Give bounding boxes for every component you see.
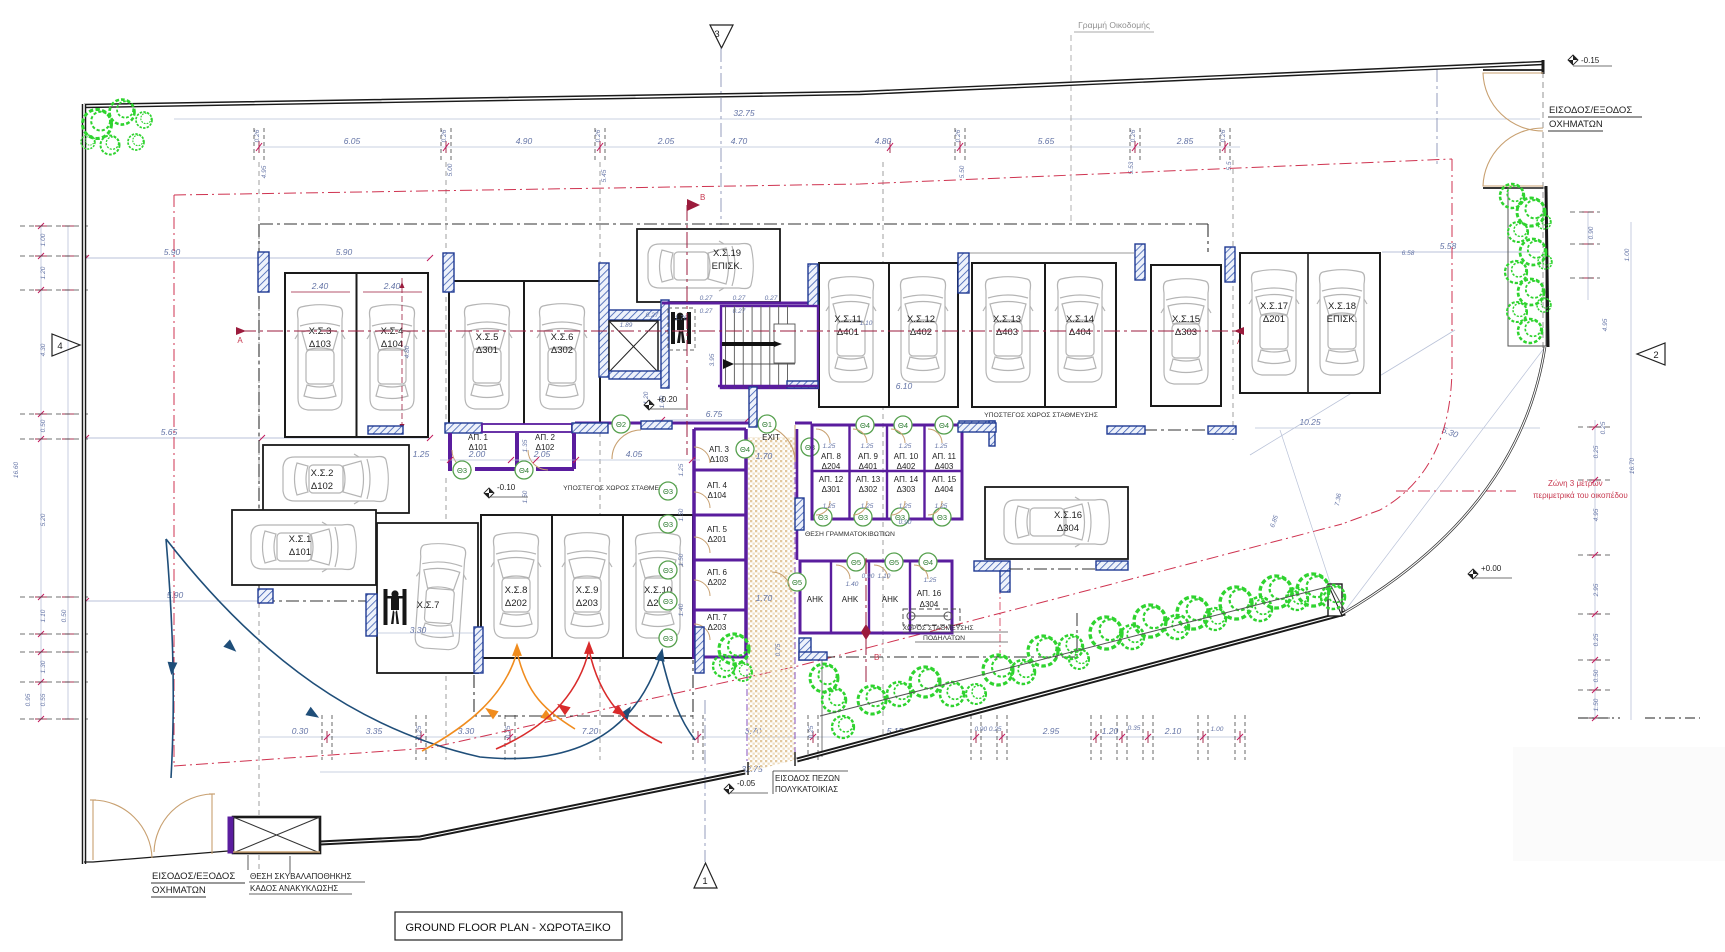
svg-text:0.50: 0.50 bbox=[1593, 669, 1600, 682]
svg-text:1.70: 1.70 bbox=[756, 593, 773, 603]
svg-text:4.95: 4.95 bbox=[1593, 508, 1600, 521]
svg-text:4: 4 bbox=[57, 341, 62, 352]
svg-text:Χ.Σ.1: Χ.Σ.1 bbox=[289, 534, 312, 545]
svg-text:0.25: 0.25 bbox=[1593, 445, 1600, 458]
svg-text:1.25: 1.25 bbox=[935, 443, 948, 450]
svg-text:Θ4: Θ4 bbox=[898, 421, 908, 430]
svg-text:ΚΑΔΟΣ ΑΝΑΚΥΚΛΩΣΗΣ: ΚΑΔΟΣ ΑΝΑΚΥΚΛΩΣΗΣ bbox=[250, 884, 338, 893]
svg-text:1.10: 1.10 bbox=[40, 609, 47, 622]
svg-text:0.75: 0.75 bbox=[775, 643, 782, 656]
svg-text:Ζώνη 3 μέτρων: Ζώνη 3 μέτρων bbox=[1548, 479, 1603, 488]
svg-text:Χ.Σ.2: Χ.Σ.2 bbox=[311, 468, 334, 479]
svg-text:Χ.Σ.6: Χ.Σ.6 bbox=[551, 332, 574, 343]
svg-text:Δ303: Δ303 bbox=[897, 485, 916, 494]
svg-text:1.76: 1.76 bbox=[675, 315, 688, 322]
svg-text:5.00: 5.00 bbox=[447, 163, 454, 176]
svg-text:ΕΙΣΟΔΟΣ/ΕΞΟΔΟΣ: ΕΙΣΟΔΟΣ/ΕΞΟΔΟΣ bbox=[152, 871, 235, 882]
svg-text:Θ3: Θ3 bbox=[858, 513, 868, 522]
svg-text:Θ5: Θ5 bbox=[851, 558, 861, 567]
svg-text:ΑΠ. 16: ΑΠ. 16 bbox=[917, 589, 942, 598]
svg-text:ΠΟΔΗΛΑΤΩΝ: ΠΟΔΗΛΑΤΩΝ bbox=[923, 635, 965, 642]
svg-text:3: 3 bbox=[714, 29, 719, 40]
svg-text:ΑΠ. 3: ΑΠ. 3 bbox=[709, 445, 730, 454]
svg-text:Χ.Σ.5: Χ.Σ.5 bbox=[476, 332, 499, 343]
svg-text:-0.15: -0.15 bbox=[1581, 56, 1600, 65]
svg-text:3.95: 3.95 bbox=[709, 353, 716, 366]
svg-text:0.90: 0.90 bbox=[862, 573, 875, 580]
svg-text:0.95: 0.95 bbox=[25, 693, 32, 706]
svg-text:6.58: 6.58 bbox=[1402, 250, 1415, 257]
svg-text:0.27: 0.27 bbox=[765, 295, 778, 302]
svg-text:Δ102: Δ102 bbox=[311, 481, 333, 492]
svg-text:1.25: 1.25 bbox=[861, 443, 874, 450]
svg-text:EXIT: EXIT bbox=[762, 433, 780, 442]
svg-text:ΑΠ. 11: ΑΠ. 11 bbox=[932, 452, 956, 461]
svg-text:ΑΠ. 15: ΑΠ. 15 bbox=[932, 475, 957, 484]
svg-text:1.00: 1.00 bbox=[1624, 248, 1631, 261]
svg-text:1.25: 1.25 bbox=[413, 449, 430, 459]
svg-text:5.58: 5.58 bbox=[1440, 241, 1457, 251]
svg-text:Χ.Σ.13: Χ.Σ.13 bbox=[993, 314, 1021, 325]
svg-text:Δ401: Δ401 bbox=[837, 327, 859, 338]
svg-text:0.27: 0.27 bbox=[700, 308, 713, 315]
svg-text:Δ201: Δ201 bbox=[1263, 314, 1285, 325]
svg-text:0.26: 0.26 bbox=[254, 129, 261, 142]
svg-text:Χ.Σ.11: Χ.Σ.11 bbox=[834, 314, 861, 325]
svg-text:Χ.Σ.19: Χ.Σ.19 bbox=[713, 248, 741, 259]
svg-text:0.25: 0.25 bbox=[505, 725, 512, 738]
svg-text:2.40: 2.40 bbox=[383, 281, 401, 291]
svg-text:0.26: 0.26 bbox=[1130, 129, 1137, 142]
svg-text:+0.20: +0.20 bbox=[657, 395, 678, 404]
svg-text:ΑΠ. 13: ΑΠ. 13 bbox=[856, 475, 881, 484]
svg-text:Θ4: Θ4 bbox=[939, 421, 949, 430]
svg-text:4.95: 4.95 bbox=[261, 165, 268, 178]
svg-text:16.60: 16.60 bbox=[13, 461, 20, 478]
svg-text:Θ3: Θ3 bbox=[663, 634, 673, 643]
svg-text:Χ.Σ.9: Χ.Σ.9 bbox=[576, 585, 599, 596]
svg-text:ΘΕΣΗ ΣΚΥΒΑΛΑΠΟΘΗΚΗΣ: ΘΕΣΗ ΣΚΥΒΑΛΑΠΟΘΗΚΗΣ bbox=[250, 872, 352, 881]
svg-text:5.90: 5.90 bbox=[164, 247, 181, 257]
svg-text:Χ.Σ.7: Χ.Σ.7 bbox=[417, 600, 440, 611]
svg-text:Δ104: Δ104 bbox=[708, 491, 727, 500]
svg-text:5.20: 5.20 bbox=[40, 513, 47, 526]
svg-text:2.40: 2.40 bbox=[311, 281, 329, 291]
svg-text:2.10: 2.10 bbox=[1164, 726, 1182, 736]
svg-text:ΟΧΗΜΑΤΩΝ: ΟΧΗΜΑΤΩΝ bbox=[152, 885, 206, 896]
svg-text:ΑΠ. 9: ΑΠ. 9 bbox=[858, 452, 879, 461]
svg-text:Δ302: Δ302 bbox=[859, 485, 878, 494]
svg-text:Δ404: Δ404 bbox=[935, 485, 954, 494]
svg-text:ΑΠ. 7: ΑΠ. 7 bbox=[707, 613, 728, 622]
svg-text:1.20: 1.20 bbox=[1102, 726, 1119, 736]
svg-text:1.40: 1.40 bbox=[678, 603, 685, 616]
svg-text:1.50: 1.50 bbox=[1593, 698, 1600, 711]
svg-text:ΑΠ. 2: ΑΠ. 2 bbox=[535, 433, 556, 442]
svg-text:Δ301: Δ301 bbox=[822, 485, 841, 494]
svg-text:Δ103: Δ103 bbox=[309, 339, 331, 350]
svg-text:Δ202: Δ202 bbox=[708, 578, 727, 587]
svg-text:5.65: 5.65 bbox=[161, 427, 178, 437]
svg-text:Δ101: Δ101 bbox=[289, 547, 311, 558]
svg-text:Θ1: Θ1 bbox=[762, 420, 772, 429]
svg-text:5.45: 5.45 bbox=[601, 169, 608, 182]
svg-text:4.80: 4.80 bbox=[404, 345, 411, 358]
svg-text:4.70: 4.70 bbox=[731, 136, 748, 146]
svg-text:0.25: 0.25 bbox=[1593, 633, 1600, 646]
svg-text:0.27: 0.27 bbox=[700, 295, 713, 302]
svg-text:1.25: 1.25 bbox=[823, 443, 836, 450]
svg-text:5.5: 5.5 bbox=[1226, 161, 1233, 170]
svg-text:Θ3: Θ3 bbox=[805, 443, 815, 452]
svg-text:0.35: 0.35 bbox=[1128, 725, 1141, 732]
svg-text:1.25: 1.25 bbox=[823, 503, 836, 510]
svg-text:4.95: 4.95 bbox=[1602, 318, 1609, 331]
svg-text:+0.00: +0.00 bbox=[1481, 564, 1502, 573]
svg-text:Χ.Σ.8: Χ.Σ.8 bbox=[505, 585, 528, 596]
svg-text:0.26: 0.26 bbox=[955, 129, 962, 142]
svg-text:Δ202: Δ202 bbox=[505, 598, 527, 609]
svg-text:Δ302: Δ302 bbox=[551, 345, 573, 356]
svg-text:6.10: 6.10 bbox=[896, 381, 913, 391]
svg-text:1.25: 1.25 bbox=[899, 443, 912, 450]
svg-text:Δ203: Δ203 bbox=[708, 623, 727, 632]
svg-text:Θ5: Θ5 bbox=[889, 558, 899, 567]
svg-text:Δ303: Δ303 bbox=[1175, 327, 1197, 338]
svg-text:Δ403: Δ403 bbox=[935, 462, 954, 471]
svg-text:1.35: 1.35 bbox=[522, 439, 529, 452]
svg-text:Δ304: Δ304 bbox=[920, 600, 939, 609]
svg-text:Δ404: Δ404 bbox=[1069, 327, 1091, 338]
svg-text:6.75: 6.75 bbox=[706, 409, 723, 419]
svg-text:Θ3: Θ3 bbox=[663, 487, 673, 496]
svg-text:ΕΠΙΣΚ.: ΕΠΙΣΚ. bbox=[1327, 314, 1358, 325]
svg-text:Δ201: Δ201 bbox=[708, 535, 727, 544]
svg-text:ΠΟΛΥΚΑΤΟΙΚΙΑΣ: ΠΟΛΥΚΑΤΟΙΚΙΑΣ bbox=[775, 785, 838, 794]
svg-text:32.75: 32.75 bbox=[733, 108, 755, 118]
svg-text:2.00: 2.00 bbox=[468, 449, 486, 459]
svg-text:1.00: 1.00 bbox=[1211, 726, 1224, 733]
svg-text:Δ304: Δ304 bbox=[1057, 523, 1079, 534]
svg-text:ΑΠ. 10: ΑΠ. 10 bbox=[894, 452, 919, 461]
svg-text:Θ3: Θ3 bbox=[937, 513, 947, 522]
svg-text:0.90 0.25: 0.90 0.25 bbox=[974, 726, 1001, 733]
svg-text:ΑΗΚ: ΑΗΚ bbox=[882, 595, 899, 604]
svg-text:0.50: 0.50 bbox=[61, 609, 68, 622]
svg-text:1.10: 1.10 bbox=[860, 320, 873, 327]
svg-text:Δ403: Δ403 bbox=[996, 327, 1018, 338]
svg-text:1.50: 1.50 bbox=[678, 508, 685, 521]
svg-text:0.27: 0.27 bbox=[733, 295, 746, 302]
svg-text:Θ3: Θ3 bbox=[663, 520, 673, 529]
svg-text:ΑΗΚ: ΑΗΚ bbox=[842, 595, 859, 604]
svg-text:Θ2: Θ2 bbox=[616, 420, 626, 429]
svg-text:περιμετρικά του οικοπέδου: περιμετρικά του οικοπέδου bbox=[1533, 491, 1628, 500]
svg-text:4.80: 4.80 bbox=[875, 136, 892, 146]
svg-text:Χ.Σ.15: Χ.Σ.15 bbox=[1172, 314, 1200, 325]
svg-text:1: 1 bbox=[702, 876, 707, 887]
svg-text:1.10: 1.10 bbox=[878, 573, 891, 580]
svg-text:0.50: 0.50 bbox=[40, 419, 47, 432]
svg-text:1.40: 1.40 bbox=[846, 581, 859, 588]
svg-text:ΕΙΣΟΔΟΣ/ΕΞΟΔΟΣ: ΕΙΣΟΔΟΣ/ΕΞΟΔΟΣ bbox=[1549, 105, 1632, 116]
svg-text:0.26: 0.26 bbox=[1220, 129, 1227, 142]
svg-text:Δ301: Δ301 bbox=[476, 345, 498, 356]
svg-text:0.55: 0.55 bbox=[40, 693, 47, 706]
svg-text:ΑΠ. 4: ΑΠ. 4 bbox=[707, 481, 728, 490]
svg-text:ΑΠ. 6: ΑΠ. 6 bbox=[707, 568, 728, 577]
svg-text:Γραμμή Οικοδομής: Γραμμή Οικοδομής bbox=[1078, 20, 1150, 30]
svg-text:5.50: 5.50 bbox=[959, 165, 966, 178]
svg-text:1.25: 1.25 bbox=[899, 503, 912, 510]
svg-text:Δ103: Δ103 bbox=[710, 455, 729, 464]
svg-text:1.89: 1.89 bbox=[620, 322, 633, 329]
svg-text:1.00: 1.00 bbox=[40, 233, 47, 246]
svg-text:4.30: 4.30 bbox=[40, 343, 47, 356]
svg-text:Δ402: Δ402 bbox=[910, 327, 932, 338]
svg-text:Χ.Σ.18: Χ.Σ.18 bbox=[1328, 301, 1356, 312]
svg-text:2.05: 2.05 bbox=[533, 449, 551, 459]
svg-text:0.30: 0.30 bbox=[292, 726, 309, 736]
svg-text:ΑΠ. 12: ΑΠ. 12 bbox=[819, 475, 844, 484]
svg-text:Χ.Σ.16: Χ.Σ.16 bbox=[1054, 510, 1082, 521]
svg-text:Θ4: Θ4 bbox=[923, 558, 933, 567]
svg-text:5.90: 5.90 bbox=[336, 247, 353, 257]
svg-text:2.95: 2.95 bbox=[1593, 583, 1600, 597]
svg-text:16.70: 16.70 bbox=[1629, 457, 1636, 474]
svg-text:6.05: 6.05 bbox=[344, 136, 361, 146]
svg-text:ΑΠ. 8: ΑΠ. 8 bbox=[821, 452, 842, 461]
svg-text:1.20: 1.20 bbox=[40, 266, 47, 279]
svg-text:1.50: 1.50 bbox=[678, 553, 685, 566]
svg-text:0.25: 0.25 bbox=[1600, 421, 1607, 434]
svg-text:1.25: 1.25 bbox=[861, 503, 874, 510]
svg-text:ΧΩΡΟΣ ΣΤΑΘΜΕΥΣΗΣ: ΧΩΡΟΣ ΣΤΑΘΜΕΥΣΗΣ bbox=[902, 625, 973, 632]
svg-text:GROUND FLOOR PLAN - ΧΩΡΟΤΑΞΙΚ: GROUND FLOOR PLAN - ΧΩΡΟΤΑΞΙΚΟ bbox=[405, 922, 611, 934]
svg-text:2.95: 2.95 bbox=[1042, 726, 1060, 736]
svg-text:B': B' bbox=[874, 653, 881, 662]
svg-text:ΑΗΚ: ΑΗΚ bbox=[807, 595, 824, 604]
svg-text:Θ4: Θ4 bbox=[740, 445, 750, 454]
svg-text:3.30: 3.30 bbox=[410, 625, 427, 635]
svg-text:0.27: 0.27 bbox=[646, 312, 659, 319]
svg-text:0.27: 0.27 bbox=[733, 308, 746, 315]
svg-text:3.35: 3.35 bbox=[366, 726, 383, 736]
svg-text:Χ.Σ.17: Χ.Σ.17 bbox=[1260, 301, 1288, 312]
svg-text:Θ3: Θ3 bbox=[457, 466, 467, 475]
svg-text:1.25: 1.25 bbox=[935, 503, 948, 510]
svg-text:1.30: 1.30 bbox=[40, 660, 47, 673]
svg-text:-0.10: -0.10 bbox=[497, 483, 516, 492]
svg-text:Δ203: Δ203 bbox=[576, 598, 598, 609]
svg-text:Δ204: Δ204 bbox=[822, 462, 841, 471]
svg-text:ΥΠΟΣΤΕΓΟΣ ΧΩΡΟΣ ΣΤΑΘΜΕΥΣΗΣ: ΥΠΟΣΤΕΓΟΣ ΧΩΡΟΣ ΣΤΑΘΜΕΥΣΗΣ bbox=[984, 412, 1098, 419]
svg-text:4.90: 4.90 bbox=[516, 136, 533, 146]
svg-text:ΕΙΣΟΔΟΣ ΠΕΖΩΝ: ΕΙΣΟΔΟΣ ΠΕΖΩΝ bbox=[775, 774, 840, 783]
svg-text:B: B bbox=[700, 193, 705, 202]
svg-text:0.25: 0.25 bbox=[808, 725, 815, 738]
svg-text:ΑΠ. 1: ΑΠ. 1 bbox=[468, 433, 489, 442]
svg-text:Θ4: Θ4 bbox=[519, 466, 529, 475]
svg-text:0.25: 0.25 bbox=[416, 725, 423, 738]
svg-text:0.26: 0.26 bbox=[595, 129, 602, 142]
svg-text:Θ5: Θ5 bbox=[792, 578, 802, 587]
svg-text:0.90: 0.90 bbox=[1588, 226, 1595, 239]
svg-text:Δ401: Δ401 bbox=[859, 462, 878, 471]
svg-text:-0.05: -0.05 bbox=[737, 779, 756, 788]
svg-text:1.25: 1.25 bbox=[924, 577, 937, 584]
svg-text:Θ4: Θ4 bbox=[860, 421, 870, 430]
svg-text:1.70: 1.70 bbox=[756, 451, 773, 461]
svg-text:Χ.Σ.12: Χ.Σ.12 bbox=[907, 314, 935, 325]
svg-text:2.85: 2.85 bbox=[1176, 136, 1194, 146]
svg-text:5.65: 5.65 bbox=[1038, 136, 1055, 146]
svg-text:0.26: 0.26 bbox=[441, 129, 448, 142]
svg-text:A: A bbox=[237, 336, 243, 345]
svg-text:ΘΕΣΗ ΓΡΑΜΜΑΤΟΚΙΒΩΤΙΩΝ: ΘΕΣΗ ΓΡΑΜΜΑΤΟΚΙΒΩΤΙΩΝ bbox=[805, 531, 895, 538]
svg-text:ΟΧΗΜΑΤΩΝ: ΟΧΗΜΑΤΩΝ bbox=[1549, 119, 1603, 130]
svg-text:0.90: 0.90 bbox=[899, 519, 912, 526]
svg-text:7.20: 7.20 bbox=[582, 726, 599, 736]
svg-text:ΑΠ. 14: ΑΠ. 14 bbox=[894, 475, 919, 484]
svg-text:2: 2 bbox=[1653, 350, 1658, 361]
svg-text:4.05: 4.05 bbox=[626, 449, 643, 459]
svg-text:Δ104: Δ104 bbox=[381, 339, 403, 350]
svg-text:Χ.Σ.14: Χ.Σ.14 bbox=[1066, 314, 1094, 325]
svg-text:1.25: 1.25 bbox=[678, 463, 685, 476]
svg-text:2.05: 2.05 bbox=[657, 136, 675, 146]
svg-text:Θ3: Θ3 bbox=[663, 597, 673, 606]
svg-text:ΕΠΙΣΚ.: ΕΠΙΣΚ. bbox=[712, 261, 743, 272]
svg-text:ΑΠ. 5: ΑΠ. 5 bbox=[707, 525, 728, 534]
svg-text:Θ3: Θ3 bbox=[663, 566, 673, 575]
svg-text:Δ402: Δ402 bbox=[897, 462, 916, 471]
